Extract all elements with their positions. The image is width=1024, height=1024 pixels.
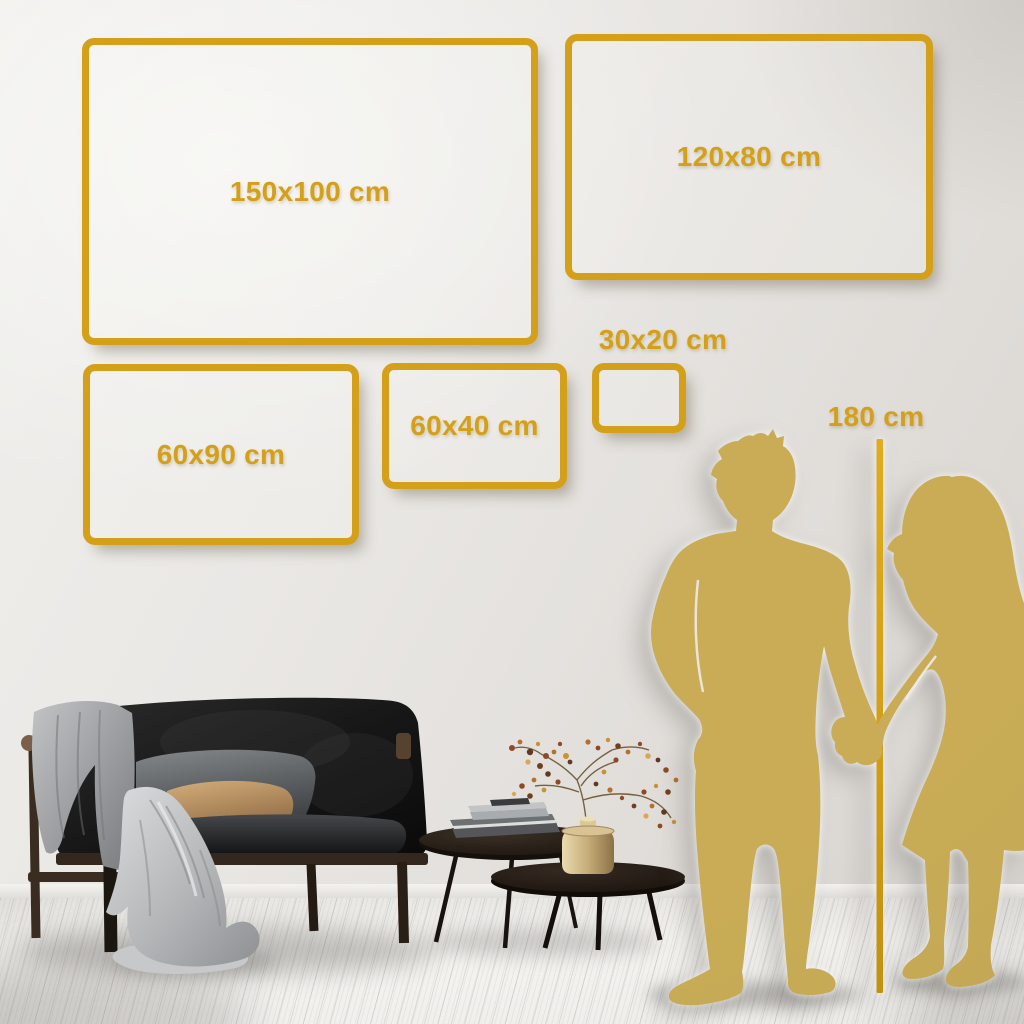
brass-vase — [562, 817, 614, 875]
book-stack — [450, 798, 560, 838]
frame-120x80-label: 120x80 cm — [677, 141, 821, 173]
frame-60x90-label: 60x90 cm — [157, 439, 286, 471]
shadow — [648, 982, 860, 1008]
frame-60x90: 60x90 cm — [83, 364, 359, 545]
frame-30x20-label: 30x20 cm — [599, 324, 728, 355]
frame-60x40-label: 60x40 cm — [410, 410, 539, 442]
frame-60x40: 60x40 cm — [382, 363, 567, 489]
size-guide-scene: 150x100 cm 120x80 cm 60x90 cm 60x40 cm 3… — [0, 0, 1024, 1024]
sofa-arm-post — [396, 733, 411, 759]
coffee-tables — [410, 735, 690, 960]
frame-150x100: 150x100 cm — [82, 38, 538, 345]
frame-30x20 — [592, 363, 686, 433]
frame-30x20-caption: 30x20 cm — [575, 324, 751, 356]
height-reference-label: 180 cm — [828, 401, 925, 432]
sofa — [0, 690, 460, 1024]
frame-150x100-label: 150x100 cm — [230, 176, 390, 208]
sofa-leg — [311, 864, 314, 931]
sofa-leg — [402, 862, 404, 943]
right-table — [491, 862, 685, 950]
frame-120x80: 120x80 cm — [565, 34, 933, 280]
height-reference-caption: 180 cm — [800, 401, 952, 433]
